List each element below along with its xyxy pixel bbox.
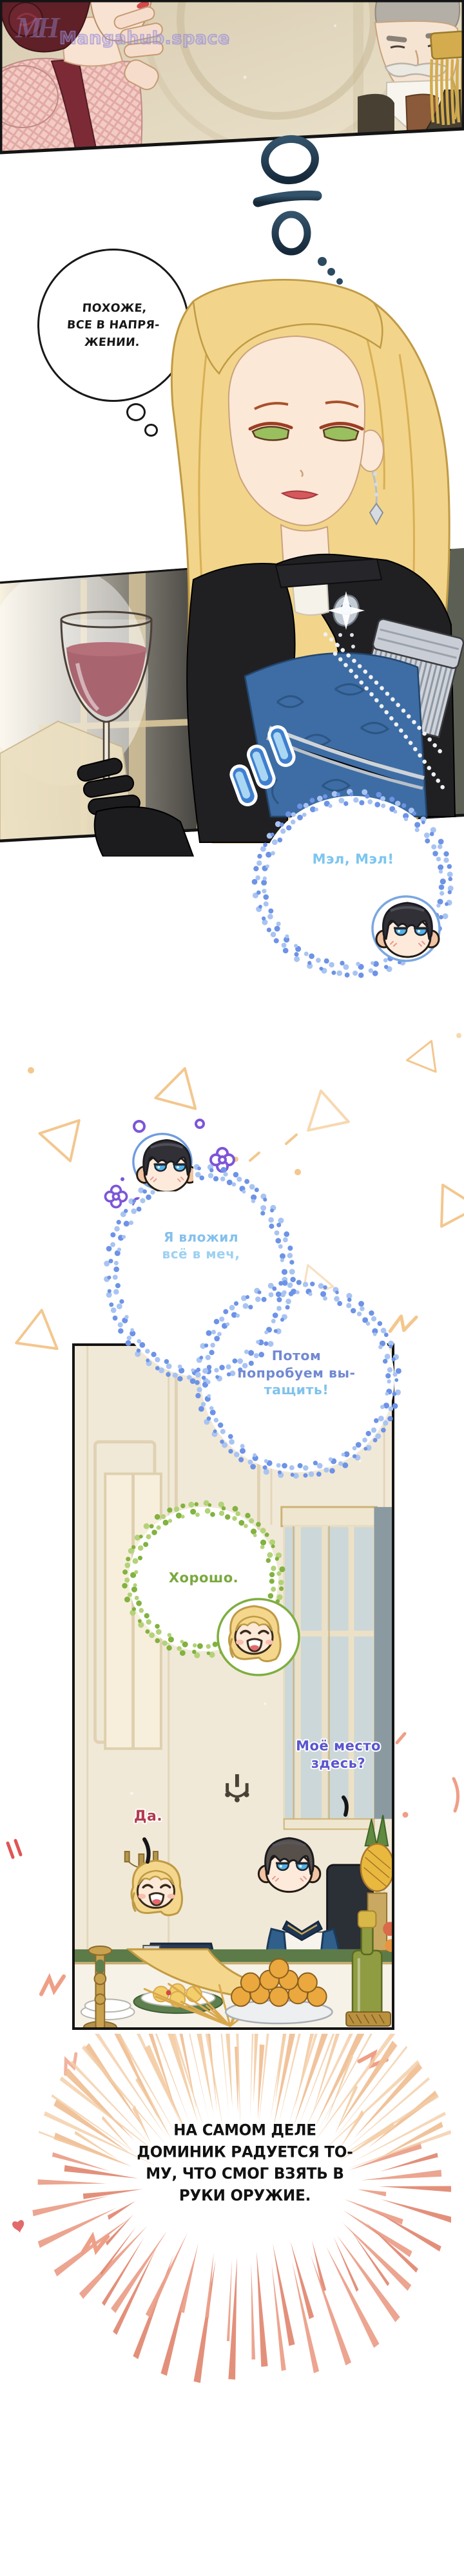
caption-line: НА САМОМ ДЕЛЕ [97,2119,393,2141]
bubble-mel-text: Мэл, Мэл! [289,851,418,867]
watermark-logo: MH [15,10,55,44]
sfx-hmm-icon [250,129,353,296]
chibi-girl-sticker [215,1596,302,1681]
scene-dinner [75,1346,392,2027]
chibi-boy-sticker [131,1130,193,1191]
caption-line: РУКИ ОРУЖИЕ. [97,2185,393,2207]
bubble-ok-text: Хорошо. [146,1570,262,1586]
comic-page: MH Mangahub.space ПОХОЖЕ, ВСЕ В НАПРЯ- Ж… [0,0,464,2576]
confetti-red-ticks [8,1841,21,1857]
chibi-boy-sticker [370,891,442,963]
confetti-dots [28,1033,461,1175]
speech-place-text: Моё место здесь? [277,1738,400,1773]
speech-yes-text: Да. [122,1808,174,1824]
bubble-sword-text: Я вложил всё в меч, [137,1229,266,1263]
confetti-triangles [16,1035,464,1349]
caption: НА САМОМ ДЕЛЕ ДОМИНИК РАДУЕТСЯ ТО- МУ, Ч… [97,2119,393,2207]
caption-line: МУ, ЧТО СМОГ ВЗЯТЬ В [97,2163,393,2185]
panel-dinner [72,1343,394,2030]
heart-icon [12,2219,26,2234]
panel-top-scene [0,0,464,158]
scene-woman [0,277,464,857]
watermark-site: Mangahub.space [59,28,230,48]
bubble-pull-text: Потом попробуем вы- тащить! [214,1347,379,1399]
caption-line: ДОМИНИК РАДУЕТСЯ ТО- [97,2141,393,2163]
